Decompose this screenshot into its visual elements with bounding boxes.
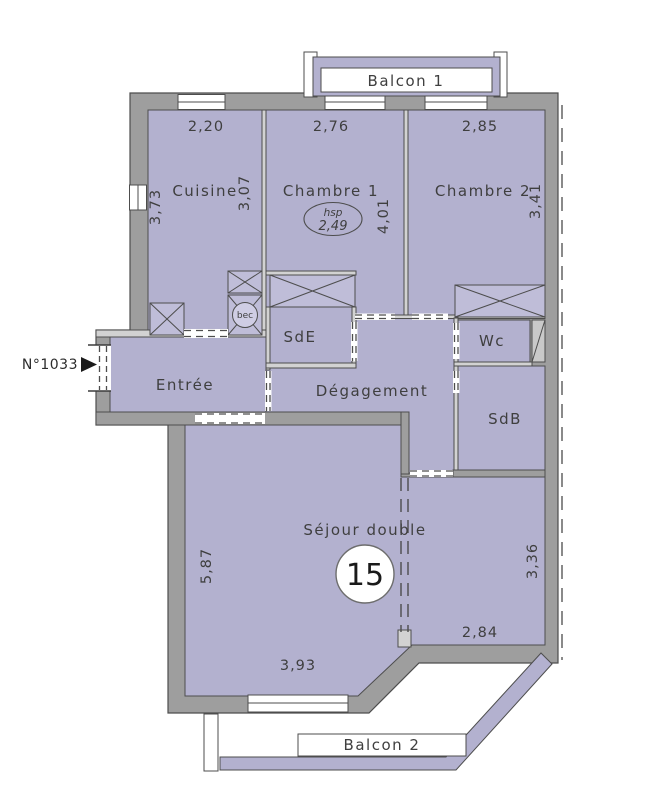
wall-chambre1-chambre2 bbox=[404, 110, 408, 318]
hsp-value: 2,49 bbox=[319, 219, 348, 234]
label-wc: Wc bbox=[479, 332, 505, 350]
door-wc bbox=[453, 323, 460, 359]
balcon1-label: Balcon 1 bbox=[368, 72, 445, 90]
dim-sejour-right-height: 3,36 bbox=[525, 543, 541, 579]
lot-door-label: N°1033 bbox=[22, 357, 78, 373]
dim-sejour-width-bottom: 3,93 bbox=[280, 658, 316, 674]
label-sde: SdE bbox=[283, 328, 316, 346]
window-sejour-bottom bbox=[248, 695, 348, 712]
closet-wc bbox=[455, 285, 545, 317]
lot-number-badge: 15 bbox=[336, 545, 394, 603]
duct-right-of-wc bbox=[532, 320, 545, 362]
room-entree bbox=[110, 337, 266, 412]
label-chambre2: Chambre 2 bbox=[435, 182, 531, 200]
balcon1: Balcon 1 bbox=[304, 52, 507, 97]
dim-chambre2-height: 3,41 bbox=[528, 183, 544, 219]
window-chambre1-top bbox=[325, 95, 385, 110]
door-chambre1 bbox=[355, 314, 395, 321]
floor-plan-page: Balcon 1 Balcon 2 hsp 2,49 15 N°1033 Cui… bbox=[0, 0, 656, 800]
door-sdb bbox=[453, 371, 460, 393]
label-chambre1: Chambre 1 bbox=[283, 182, 379, 200]
dim-chambre1-width: 2,76 bbox=[313, 119, 349, 135]
wall-sdb-bottom bbox=[453, 470, 545, 477]
window-cuisine-top bbox=[178, 95, 225, 110]
door-chambre2 bbox=[412, 314, 448, 321]
closet-sde bbox=[270, 275, 355, 307]
label-entree: Entrée bbox=[156, 376, 214, 394]
floor-plan-drawing: Balcon 1 Balcon 2 hsp 2,49 15 N°1033 Cui… bbox=[0, 0, 656, 800]
label-bec: bec bbox=[237, 311, 253, 321]
door-cuisine bbox=[184, 329, 228, 338]
label-cuisine: Cuisine bbox=[172, 182, 237, 200]
wall-sde-left bbox=[266, 307, 270, 370]
lot-number: 15 bbox=[346, 558, 384, 593]
wall-sejour-pillar bbox=[398, 630, 411, 647]
shaft-upper-box bbox=[228, 271, 262, 293]
dim-sejour-right-width: 2,84 bbox=[462, 625, 498, 641]
window-cuisine-left bbox=[130, 185, 147, 210]
entrance-arrow-icon bbox=[81, 357, 97, 372]
wall-cuisine-chambre1 bbox=[262, 110, 266, 337]
opening-entree-sejour bbox=[195, 413, 265, 424]
wall-sde-bottom bbox=[266, 363, 356, 368]
entrance-annotation: N°1033 bbox=[22, 357, 97, 373]
dim-cuisine-width: 2,20 bbox=[188, 119, 224, 135]
window-chambre2-top bbox=[425, 95, 487, 110]
dim-cuisine-height-left: 3,73 bbox=[148, 189, 164, 225]
door-sde bbox=[351, 322, 358, 361]
label-degagement: Dégagement bbox=[316, 382, 428, 400]
entrance-door bbox=[88, 345, 111, 391]
wall-wc-bottom bbox=[454, 362, 532, 366]
door-entree-degagement bbox=[265, 371, 272, 411]
dim-chambre2-width: 2,85 bbox=[462, 119, 498, 135]
balcon2-post-left bbox=[204, 714, 218, 771]
label-sejour: Séjour double bbox=[303, 521, 426, 539]
hsp-label: hsp bbox=[324, 207, 343, 219]
dim-cuisine-height-right: 3,07 bbox=[237, 175, 253, 211]
wall-corridor-sejour bbox=[401, 412, 409, 474]
label-sdb: SdB bbox=[488, 410, 522, 428]
room-chambre2 bbox=[408, 110, 545, 315]
dim-sejour-height-left: 5,87 bbox=[199, 548, 215, 584]
dim-chambre1-height: 4,01 bbox=[376, 198, 392, 234]
opening-degagement-sejour bbox=[410, 470, 453, 477]
closet-entree bbox=[150, 303, 184, 335]
wall-closet-top bbox=[266, 271, 356, 275]
balcon2-label: Balcon 2 bbox=[344, 736, 421, 754]
